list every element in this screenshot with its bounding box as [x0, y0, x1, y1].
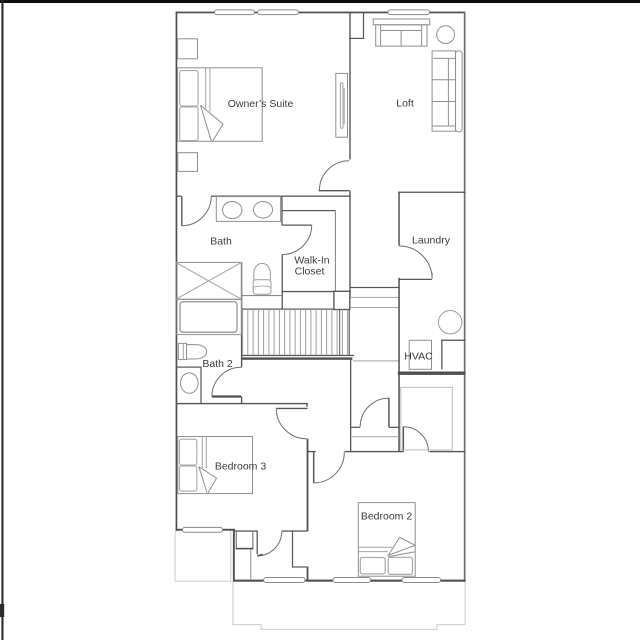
svg-text:Laundry: Laundry: [412, 234, 451, 246]
svg-text:HVAC: HVAC: [404, 350, 433, 362]
svg-text:Bath 2: Bath 2: [202, 358, 233, 370]
svg-text:Closet: Closet: [295, 265, 325, 277]
svg-text:Bedroom 3: Bedroom 3: [215, 460, 267, 472]
svg-text:Bedroom 2: Bedroom 2: [361, 510, 413, 522]
svg-text:Loft: Loft: [396, 97, 414, 109]
svg-text:Owner’s Suite: Owner’s Suite: [228, 98, 294, 110]
svg-text:Bath: Bath: [210, 235, 232, 247]
